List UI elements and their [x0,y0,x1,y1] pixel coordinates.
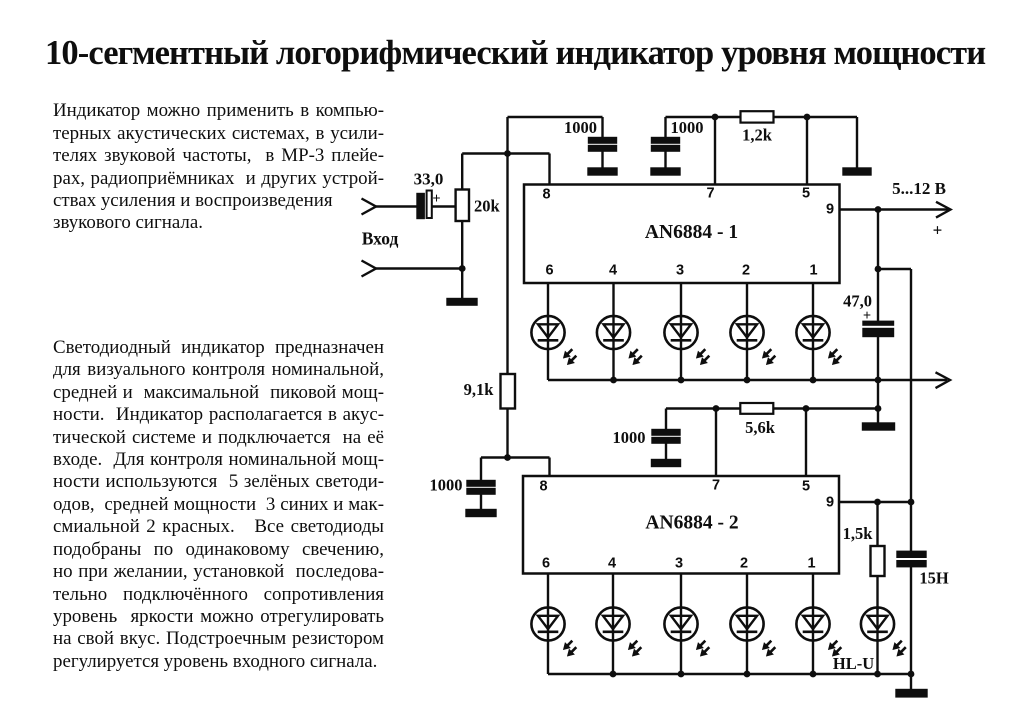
svg-text:20k: 20k [474,197,501,216]
svg-text:1: 1 [809,263,817,279]
svg-text:3: 3 [675,556,683,572]
svg-text:2: 2 [740,556,748,572]
svg-text:7: 7 [712,478,720,494]
svg-text:1000: 1000 [613,428,646,447]
svg-text:2: 2 [742,263,750,279]
svg-text:1: 1 [807,556,815,572]
svg-text:AN6884 - 1: AN6884 - 1 [645,222,738,243]
svg-text:15Н: 15Н [919,569,949,588]
svg-text:33,0: 33,0 [414,170,444,189]
svg-text:AN6884 - 2: AN6884 - 2 [645,513,738,534]
svg-text:1000: 1000 [430,476,463,495]
svg-text:9: 9 [826,495,834,511]
svg-text:1000: 1000 [671,118,704,137]
svg-text:5...12 В: 5...12 В [892,179,946,198]
svg-text:5,6k: 5,6k [745,418,776,437]
svg-text:4: 4 [609,263,617,279]
svg-text:+: + [863,308,871,324]
svg-text:7: 7 [706,186,714,202]
svg-text:6: 6 [545,263,553,279]
svg-text:8: 8 [539,479,547,495]
svg-text:5: 5 [802,186,810,202]
svg-text:8: 8 [542,187,550,203]
svg-text:9: 9 [826,202,834,218]
svg-text:4: 4 [608,556,616,572]
svg-text:9,1k: 9,1k [464,380,495,399]
svg-text:+: + [933,221,943,240]
svg-text:3: 3 [676,263,684,279]
svg-text:6: 6 [542,556,550,572]
svg-text:5: 5 [802,479,810,495]
svg-text:1,5k: 1,5k [843,524,874,543]
svg-text:+: + [432,191,440,207]
svg-text:1000: 1000 [564,118,597,137]
svg-text:HL-U: HL-U [833,654,874,673]
svg-text:1,2k: 1,2k [742,126,773,145]
svg-text:Вход: Вход [362,229,399,249]
